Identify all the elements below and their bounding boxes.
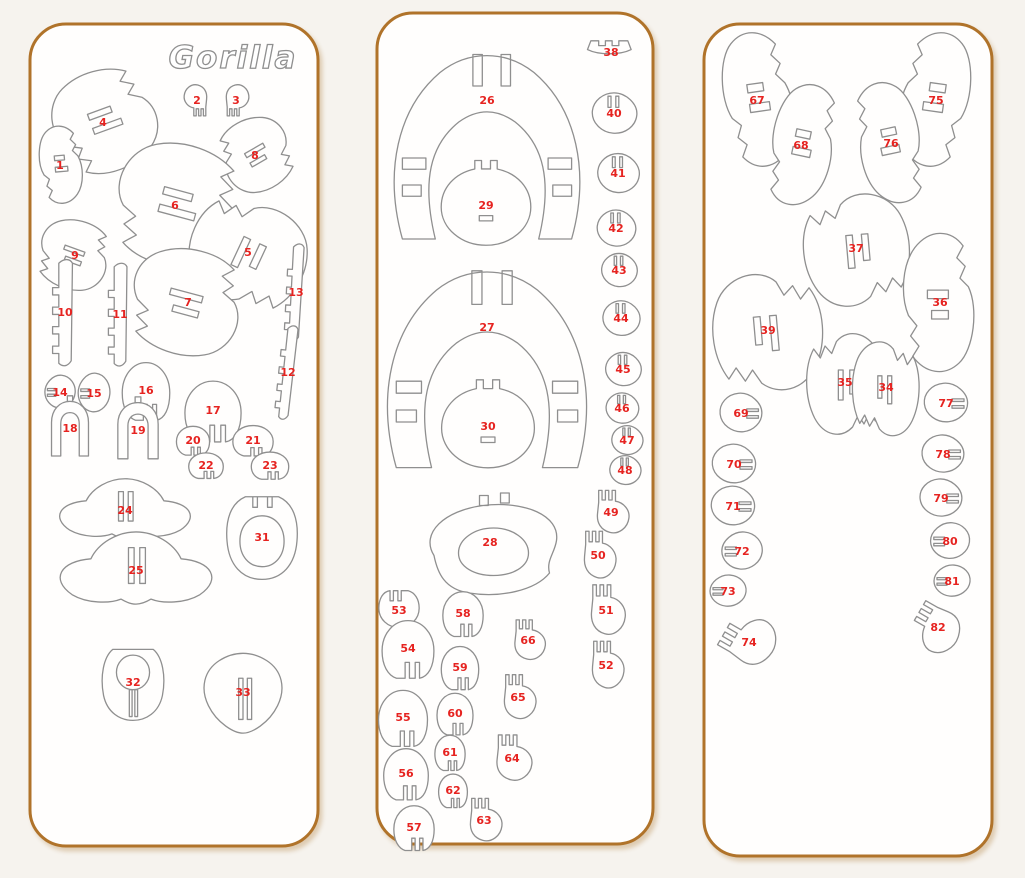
puzzle-piece-79: 79	[920, 479, 962, 516]
piece-number: 28	[482, 536, 497, 549]
puzzle-piece-48: 48	[610, 456, 641, 485]
piece-number: 36	[932, 296, 948, 309]
puzzle-piece-72: 72	[722, 532, 762, 569]
piece-number: 2	[193, 94, 201, 107]
piece-number: 18	[62, 422, 77, 435]
piece-number: 39	[760, 324, 775, 337]
puzzle-piece-40: 40	[592, 93, 637, 133]
piece-number: 51	[598, 604, 613, 617]
piece-number: 32	[125, 676, 140, 689]
piece-number: 76	[883, 137, 899, 150]
piece-number: 72	[734, 545, 749, 558]
piece-number: 56	[398, 767, 414, 780]
piece-number: 53	[391, 604, 406, 617]
puzzle-piece-47: 47	[612, 426, 643, 455]
puzzle-piece-45: 45	[606, 352, 642, 385]
piece-number: 1	[56, 159, 64, 172]
piece-number: 68	[793, 139, 808, 152]
piece-number: 78	[935, 448, 950, 461]
piece-number: 25	[128, 564, 143, 577]
piece-number: 5	[244, 246, 252, 259]
piece-number: 45	[615, 363, 630, 376]
piece-number: 70	[726, 458, 742, 471]
puzzle-piece-70: 70	[712, 444, 755, 483]
piece-number: 43	[611, 264, 626, 277]
piece-number: 13	[288, 286, 303, 299]
puzzle-piece-46: 46	[606, 393, 639, 423]
piece-number: 42	[608, 222, 623, 235]
piece-number: 52	[598, 659, 613, 672]
piece-number: 65	[510, 691, 525, 704]
piece-number: 34	[878, 381, 894, 394]
piece-number: 20	[185, 434, 201, 447]
piece-number: 4	[99, 116, 107, 129]
piece-number: 6	[171, 199, 179, 212]
piece-number: 11	[112, 308, 127, 321]
piece-number: 37	[848, 242, 863, 255]
piece-number: 31	[254, 531, 269, 544]
piece-number: 33	[235, 686, 250, 699]
piece-number: 26	[479, 94, 495, 107]
piece-number: 44	[613, 312, 629, 325]
piece-number: 81	[944, 575, 959, 588]
piece-number: 74	[741, 636, 757, 649]
piece-number: 30	[480, 420, 496, 433]
piece-number: 27	[479, 321, 494, 334]
puzzle-piece-77: 77	[924, 383, 967, 422]
piece-number: 59	[452, 661, 467, 674]
piece-number: 17	[205, 404, 220, 417]
puzzle-piece-43: 43	[602, 253, 638, 286]
piece-number: 79	[933, 492, 948, 505]
piece-number: 57	[406, 821, 421, 834]
puzzle-piece-44: 44	[603, 301, 640, 336]
piece-number: 41	[610, 167, 625, 180]
piece-number: 64	[504, 752, 520, 765]
piece-number: 46	[614, 402, 630, 415]
piece-number: 75	[928, 94, 943, 107]
piece-number: 7	[184, 296, 192, 309]
piece-number: 55	[395, 711, 410, 724]
puzzle-piece-41: 41	[598, 154, 640, 193]
piece-number: 3	[232, 94, 240, 107]
puzzle-piece-73: 73	[710, 575, 746, 606]
piece-number: 16	[138, 384, 154, 397]
piece-number: 58	[455, 607, 470, 620]
piece-number: 71	[725, 500, 740, 513]
piece-number: 12	[280, 366, 295, 379]
piece-number: 73	[720, 585, 735, 598]
piece-number: 69	[733, 407, 748, 420]
puzzle-piece-81: 81	[934, 565, 970, 596]
pattern-sheet-page: 4231869513101171214151617181920212223243…	[0, 0, 1025, 878]
piece-number: 77	[938, 397, 953, 410]
piece-number: 67	[749, 94, 764, 107]
piece-number: 22	[198, 459, 213, 472]
piece-number: 38	[603, 46, 618, 59]
puzzle-piece-31: 31	[227, 497, 298, 580]
piece-number: 24	[117, 504, 133, 517]
piece-number: 54	[400, 642, 416, 655]
piece-number: 82	[930, 621, 945, 634]
piece-number: 49	[603, 506, 618, 519]
piece-number: 10	[57, 306, 73, 319]
piece-number: 19	[130, 424, 145, 437]
piece-number: 35	[837, 376, 852, 389]
piece-number: 48	[617, 464, 632, 477]
piece-number: 14	[52, 386, 68, 399]
piece-number: 60	[447, 707, 463, 720]
piece-number: 80	[942, 535, 958, 548]
piece-number: 9	[71, 249, 79, 262]
sheet-title: Gorilla	[169, 40, 298, 76]
piece-number: 61	[442, 746, 457, 759]
puzzle-piece-42: 42	[597, 210, 636, 246]
piece-number: 62	[445, 784, 460, 797]
puzzle-piece-78: 78	[922, 435, 964, 472]
puzzle-piece-69: 69	[720, 393, 762, 432]
puzzle-piece-80: 80	[931, 523, 970, 559]
piece-number: 21	[245, 434, 260, 447]
piece-number: 8	[251, 149, 259, 162]
piece-number: 15	[86, 387, 101, 400]
piece-number: 66	[520, 634, 536, 647]
gorilla-puzzle-diagram: 4231869513101171214151617181920212223243…	[0, 0, 1025, 878]
puzzle-piece-71: 71	[711, 486, 754, 525]
piece-number: 50	[590, 549, 606, 562]
piece-number: 63	[476, 814, 491, 827]
piece-number: 47	[619, 434, 634, 447]
piece-number: 40	[606, 107, 622, 120]
piece-number: 23	[262, 459, 277, 472]
piece-number: 29	[478, 199, 493, 212]
